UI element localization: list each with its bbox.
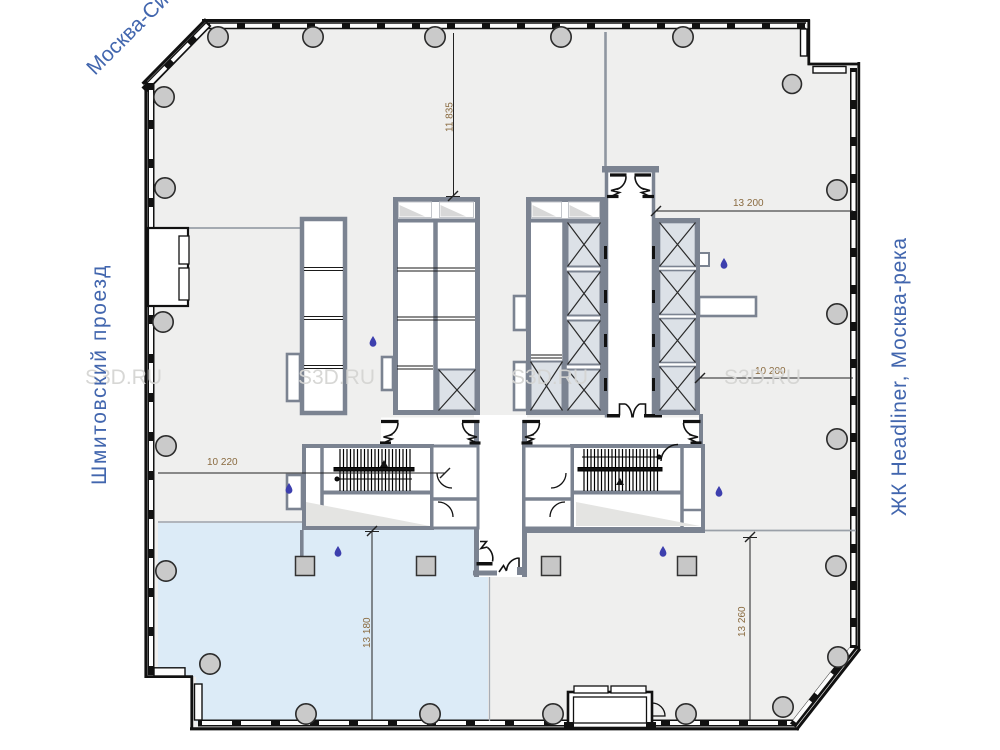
svg-text:11 835: 11 835 bbox=[445, 102, 456, 132]
svg-text:13 180: 13 180 bbox=[362, 617, 373, 648]
svg-text:S3D.RU: S3D.RU bbox=[298, 366, 375, 389]
svg-text:10 220: 10 220 bbox=[207, 457, 238, 468]
svg-text:13 200: 13 200 bbox=[733, 198, 764, 209]
svg-text:S3D.RU: S3D.RU bbox=[724, 366, 801, 389]
svg-text:ЖК Headliner, Москва-река: ЖК Headliner, Москва-река bbox=[888, 237, 911, 516]
svg-text:13 260: 13 260 bbox=[737, 606, 748, 637]
svg-text:S3D.RU: S3D.RU bbox=[511, 366, 588, 389]
svg-text:Шмитовский проезд: Шмитовский проезд bbox=[88, 264, 111, 485]
